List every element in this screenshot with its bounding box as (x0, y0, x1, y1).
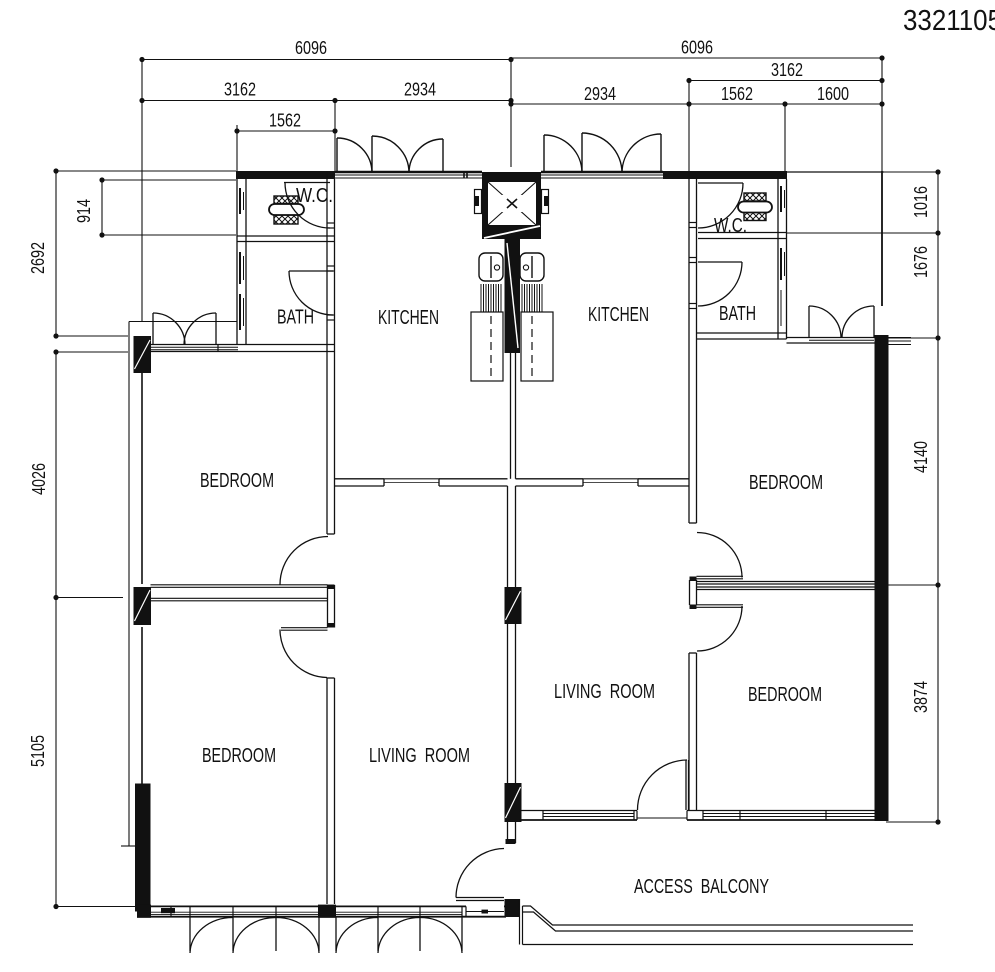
svg-text:LIVING ROOM: LIVING ROOM (554, 681, 655, 703)
svg-text:914: 914 (74, 199, 94, 223)
svg-text:6096: 6096 (681, 38, 713, 58)
svg-text:LIVING ROOM: LIVING ROOM (369, 745, 470, 767)
svg-text:4140: 4140 (911, 441, 931, 473)
svg-text:3162: 3162 (771, 60, 803, 80)
svg-text:2692: 2692 (28, 242, 48, 274)
svg-text:BEDROOM: BEDROOM (202, 745, 276, 767)
svg-text:4026: 4026 (29, 463, 49, 495)
svg-text:KITCHEN: KITCHEN (378, 307, 439, 329)
svg-text:BEDROOM: BEDROOM (200, 470, 274, 492)
svg-text:3162: 3162 (224, 80, 256, 100)
svg-text:BEDROOM: BEDROOM (748, 684, 822, 706)
svg-text:W.C.: W.C. (714, 215, 747, 237)
svg-text:ACCESS BALCONY: ACCESS BALCONY (634, 876, 769, 898)
svg-text:1562: 1562 (721, 84, 753, 104)
svg-text:1676: 1676 (911, 246, 931, 278)
svg-text:1600: 1600 (817, 84, 849, 104)
svg-text:BATH: BATH (277, 307, 314, 329)
svg-text:1562: 1562 (269, 111, 301, 131)
svg-text:3321105: 3321105 (903, 5, 995, 37)
svg-text:1016: 1016 (911, 186, 931, 218)
svg-text:KITCHEN: KITCHEN (588, 304, 649, 326)
svg-text:2934: 2934 (404, 80, 436, 100)
svg-text:BEDROOM: BEDROOM (749, 472, 823, 494)
svg-text:W.C.: W.C. (296, 185, 333, 207)
svg-text:6096: 6096 (295, 38, 327, 58)
svg-text:2934: 2934 (584, 84, 616, 104)
svg-text:3874: 3874 (911, 681, 931, 713)
svg-text:5105: 5105 (28, 735, 48, 767)
svg-text:BATH: BATH (719, 303, 756, 325)
